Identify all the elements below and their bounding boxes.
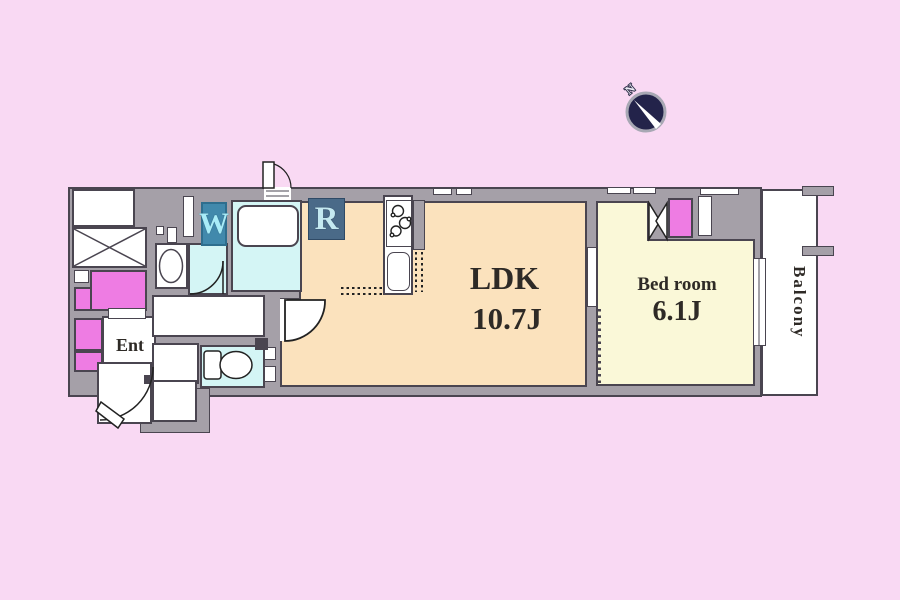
- refrigerator-letter: R: [309, 199, 344, 239]
- toilet-room: [200, 345, 265, 388]
- floorplan-canvas: W R: [0, 0, 900, 600]
- washer-letter: W: [203, 204, 225, 244]
- bedroom-balcony-window: [753, 258, 766, 346]
- storage-closet-topleft: [72, 189, 135, 227]
- wash-fixture-tall: [167, 227, 177, 243]
- wall-pillar: [255, 338, 268, 350]
- crossed-service-box: [72, 227, 147, 268]
- washstand-unit: [155, 243, 188, 289]
- wash-fixture-small: [156, 226, 164, 235]
- washer-box: W: [201, 202, 227, 246]
- window-segment-3: [607, 187, 631, 194]
- storage-magenta-2: [74, 287, 92, 311]
- washroom-floor: [188, 243, 228, 295]
- kitchen-wall-stub: [413, 200, 425, 250]
- bedroom-label: Bed room: [612, 275, 742, 295]
- hallway-lower: [152, 343, 199, 384]
- hallway-upper: [152, 295, 265, 337]
- porch-alcove: [152, 380, 197, 422]
- storage-magenta-1: [90, 270, 147, 311]
- kitchen-sink: [387, 252, 410, 291]
- toilet-door-jamb-bottom: [264, 366, 276, 382]
- meter-box: [74, 270, 89, 283]
- bedroom-door-gap: [587, 247, 597, 307]
- bedroom-closet: [668, 198, 693, 238]
- storage-magenta-3: [74, 318, 103, 351]
- washroom-window: [183, 196, 194, 237]
- window-segment-5: [700, 188, 739, 195]
- ldk-label: LDK: [437, 262, 572, 296]
- window-segment-2: [456, 188, 472, 195]
- ldk-doorway-gap: [280, 299, 287, 341]
- bedroom-closet-panel: [698, 196, 712, 236]
- kitchen-stove: [386, 200, 412, 247]
- ldk-size-label: 10.7J: [437, 303, 577, 336]
- bathtub: [237, 205, 299, 247]
- window-segment-4: [633, 187, 656, 194]
- refrigerator-box: R: [308, 198, 345, 240]
- bedroom-size-label: 6.1J: [612, 297, 742, 326]
- entrance-door-gap: [108, 308, 146, 319]
- window-segment-1: [433, 188, 452, 195]
- balcony-label: Balcony: [770, 243, 808, 361]
- entrance-label: Ent: [103, 336, 157, 355]
- entrance-vestibule: [97, 362, 152, 424]
